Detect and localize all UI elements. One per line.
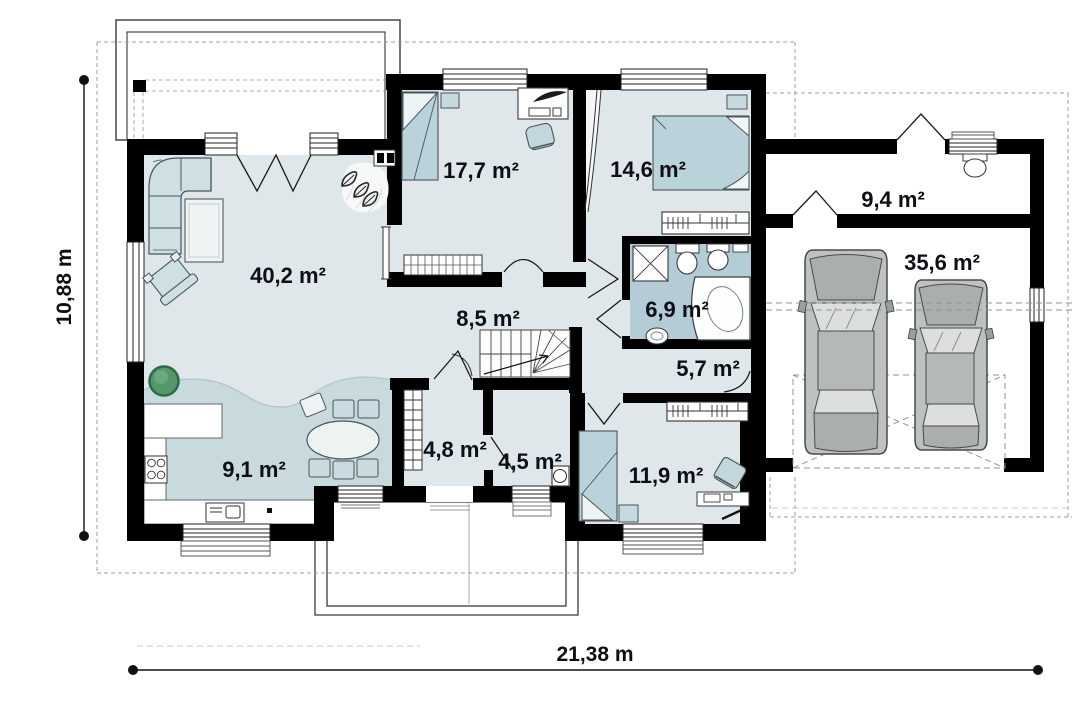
- svg-text:8,5 m²: 8,5 m²: [456, 306, 520, 331]
- svg-text:5,7 m²: 5,7 m²: [676, 356, 740, 381]
- svg-text:21,38 m: 21,38 m: [556, 643, 633, 666]
- svg-text:10,88 m: 10,88 m: [53, 248, 76, 325]
- svg-text:4,5 m²: 4,5 m²: [498, 449, 562, 474]
- svg-text:40,2 m²: 40,2 m²: [250, 263, 326, 288]
- svg-text:6,9 m²: 6,9 m²: [645, 297, 709, 322]
- svg-text:17,7 m²: 17,7 m²: [443, 158, 519, 183]
- svg-text:9,1 m²: 9,1 m²: [222, 457, 286, 482]
- svg-text:4,8 m²: 4,8 m²: [423, 437, 487, 462]
- svg-text:9,4 m²: 9,4 m²: [861, 187, 925, 212]
- svg-text:11,9 m²: 11,9 m²: [629, 463, 704, 488]
- svg-text:14,6 m²: 14,6 m²: [610, 157, 686, 182]
- svg-text:35,6 m²: 35,6 m²: [904, 250, 980, 275]
